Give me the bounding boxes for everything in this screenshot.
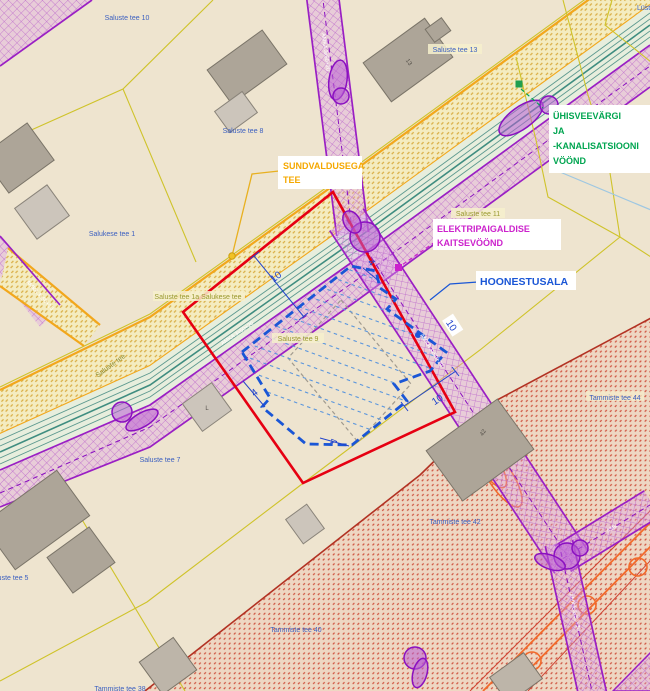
leader-marker (229, 253, 235, 259)
parcel-label: Saluste tee 10 (105, 15, 150, 22)
parcel-label: Salukese tee 1 (89, 231, 135, 238)
parcel-label: Saluste tee 11 (456, 211, 500, 218)
pole (333, 88, 349, 104)
parcel-label: Saluste tee 9 (278, 336, 319, 343)
parcel-label: Tammiste tee 40 (270, 627, 321, 634)
parcel-label: Saluste tee 5 (0, 575, 29, 582)
leader-marker (516, 81, 523, 88)
parcel-label: Saluste tee 8 (223, 128, 264, 135)
parcel-label: Tammiste tee 42 (429, 519, 480, 526)
annotation-text: ÜHISVEEVÄRGI (553, 111, 621, 121)
annotation-text: HOONESTUSALA (480, 276, 569, 288)
parcel-label: Lüst (637, 5, 650, 12)
leader-marker (395, 264, 402, 271)
annotation-text: ELEKTRIPAIGALDISE (437, 224, 530, 234)
annotation-text: -KANALISATSIOONI (553, 141, 639, 151)
parcel-label: Tammiste tee 44 (589, 395, 640, 402)
parcel-label: Saluste tee 1a Salukese tee (154, 294, 241, 301)
map-canvas: 13 42 L (0, 0, 650, 691)
parcel-label: Saluste tee 13 (433, 47, 478, 54)
parcel-label: Saluste tee 7 (140, 457, 181, 464)
annotation-text: SUNDVALDUSEGA (283, 161, 365, 171)
annotation-text: JA (553, 126, 565, 136)
plan-map-svg: 13 42 L (0, 0, 650, 691)
annotation-text: TEE (283, 175, 301, 185)
pole (112, 402, 132, 422)
parcel-label: Tammiste tee 38 (94, 686, 145, 691)
pole (572, 540, 588, 556)
annotation-text: KAITSEVÖÖND (437, 238, 504, 248)
annotation-text: VÖÖND (553, 156, 587, 166)
